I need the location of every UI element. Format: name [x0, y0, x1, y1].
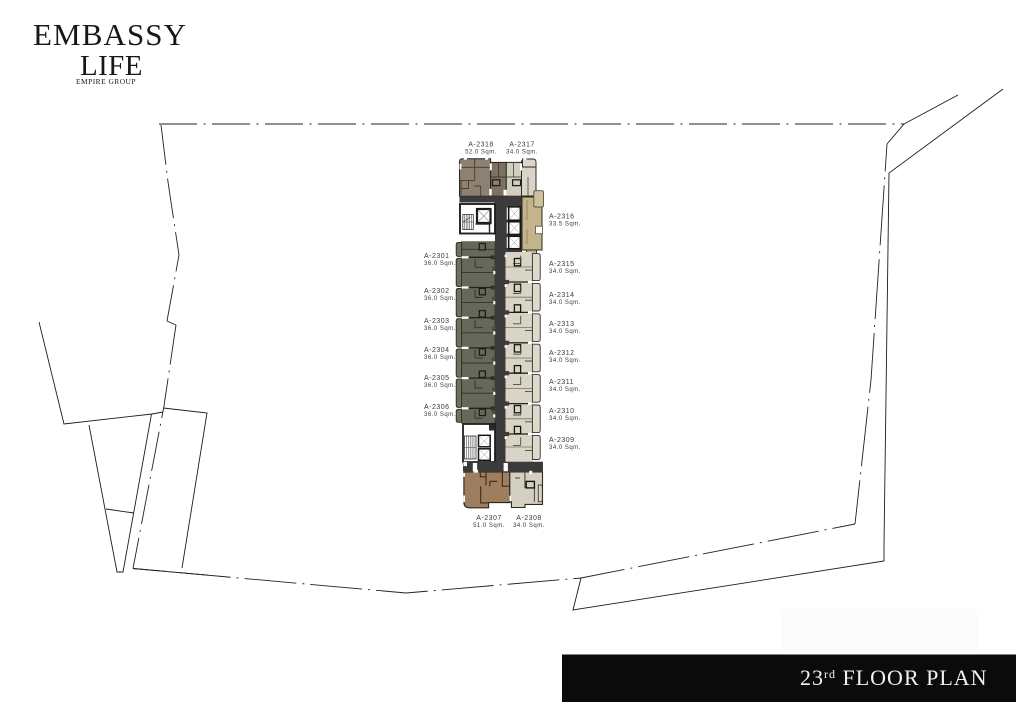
svg-text:EMBASSY: EMBASSY [33, 17, 187, 52]
svg-text:A-2314: A-2314 [549, 292, 575, 299]
svg-text:34.0 Sqm.: 34.0 Sqm. [506, 150, 538, 156]
svg-text:36.0 Sqm.: 36.0 Sqm. [424, 326, 456, 332]
svg-text:A-2304: A-2304 [424, 347, 450, 354]
svg-text:A-2301: A-2301 [424, 253, 450, 260]
svg-text:34.0 Sqm.: 34.0 Sqm. [549, 445, 581, 451]
svg-text:A-2311: A-2311 [549, 379, 574, 386]
svg-text:34.0 Sqm.: 34.0 Sqm. [549, 358, 581, 364]
svg-text:36.0 Sqm.: 36.0 Sqm. [424, 296, 456, 302]
svg-text:A-2305: A-2305 [424, 375, 450, 382]
svg-text:34.0 Sqm.: 34.0 Sqm. [549, 300, 581, 306]
svg-text:A-2316: A-2316 [549, 214, 575, 221]
svg-text:A-2309: A-2309 [549, 437, 575, 444]
svg-text:36.0 Sqm.: 36.0 Sqm. [424, 355, 456, 361]
svg-text:34.0 Sqm.: 34.0 Sqm. [549, 269, 581, 275]
svg-text:A-2308: A-2308 [516, 515, 542, 522]
svg-text:34.0 Sqm.: 34.0 Sqm. [549, 387, 581, 393]
svg-text:36.0 Sqm.: 36.0 Sqm. [424, 261, 456, 267]
svg-text:A-2307: A-2307 [476, 515, 502, 522]
svg-text:34.0 Sqm.: 34.0 Sqm. [549, 329, 581, 335]
svg-text:34.0 Sqm.: 34.0 Sqm. [549, 416, 581, 422]
svg-text:A-2310: A-2310 [549, 408, 575, 415]
svg-text:A-2306: A-2306 [424, 404, 450, 411]
svg-text:A-2303: A-2303 [424, 318, 450, 325]
svg-text:A-2313: A-2313 [549, 321, 575, 328]
svg-text:51.0 Sqm.: 51.0 Sqm. [473, 523, 505, 529]
svg-text:34.0 Sqm.: 34.0 Sqm. [513, 523, 545, 529]
svg-text:A-2317: A-2317 [509, 142, 535, 149]
svg-text:A-2318: A-2318 [468, 142, 494, 149]
svg-text:33.5 Sqm.: 33.5 Sqm. [549, 222, 581, 228]
svg-text:A-2312: A-2312 [549, 350, 575, 357]
svg-text:52.0 Sqm.: 52.0 Sqm. [465, 150, 497, 156]
svg-text:36.0 Sqm.: 36.0 Sqm. [424, 383, 456, 389]
svg-text:36.0 Sqm.: 36.0 Sqm. [424, 412, 456, 418]
svg-text:A-2315: A-2315 [549, 261, 575, 268]
svg-text:EMPIRE GROUP: EMPIRE GROUP [76, 77, 136, 86]
svg-text:A-2302: A-2302 [424, 288, 450, 295]
